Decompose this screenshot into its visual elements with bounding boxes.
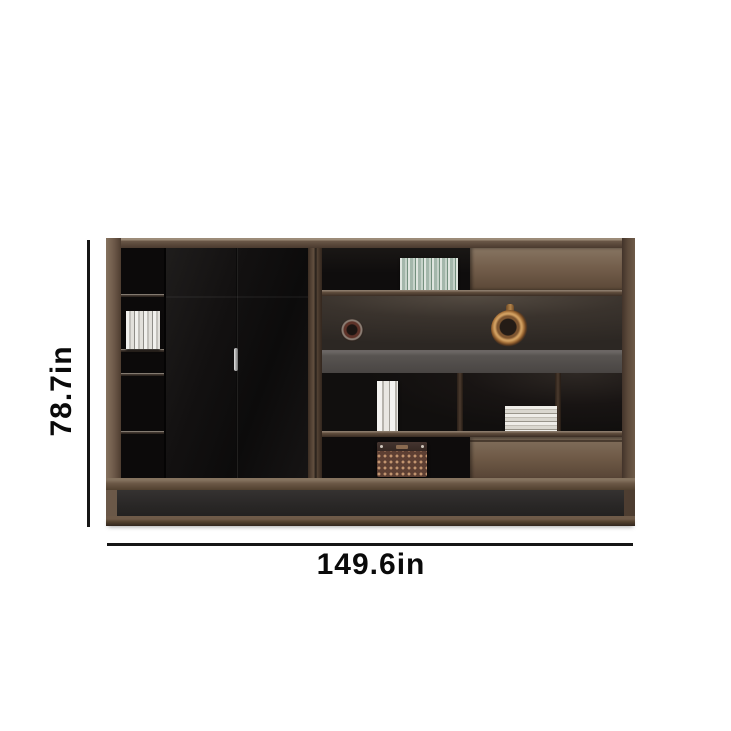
drawer-lip bbox=[470, 440, 622, 442]
section-divider bbox=[308, 248, 322, 478]
left-shelf-column bbox=[121, 248, 164, 478]
left-column-shelf bbox=[121, 431, 164, 434]
standing-books bbox=[377, 381, 398, 431]
gray-fascia-band bbox=[322, 350, 622, 373]
cabinet-top-frame bbox=[106, 238, 635, 248]
left-column-books bbox=[126, 311, 160, 349]
sliding-panel-top bbox=[470, 248, 622, 290]
right-shelving-section bbox=[322, 248, 622, 478]
basket-rivet bbox=[421, 445, 424, 448]
door-handle bbox=[234, 348, 238, 371]
vertical-divider bbox=[457, 373, 463, 431]
height-dimension-line bbox=[87, 240, 90, 527]
bottom-wood-band bbox=[106, 478, 635, 490]
left-column-shelf bbox=[121, 294, 164, 297]
bookcase-cabinet bbox=[106, 238, 635, 526]
display-row bbox=[322, 296, 622, 350]
recessed-base-panel bbox=[117, 490, 624, 516]
left-column-shelf bbox=[121, 349, 164, 352]
width-dimension-line bbox=[107, 543, 633, 546]
basket-rivet bbox=[380, 445, 383, 448]
cabinet-interior bbox=[121, 248, 622, 478]
drawer-front bbox=[470, 437, 622, 478]
door-reflection bbox=[166, 296, 308, 298]
product-dimension-image: 78.7in 149.6in bbox=[0, 0, 731, 731]
vase-ring bbox=[491, 310, 529, 348]
bottom-shelf-row bbox=[322, 437, 622, 478]
left-column-shelf bbox=[121, 373, 164, 376]
bottom-wood-strip bbox=[106, 516, 635, 526]
middle-shelf-row bbox=[322, 373, 622, 431]
top-shelf-row bbox=[322, 248, 622, 290]
book-stack bbox=[505, 406, 557, 431]
width-dimension-label: 149.6in bbox=[271, 548, 471, 582]
copper-ring-vase bbox=[491, 304, 529, 348]
small-ornament bbox=[340, 319, 364, 343]
basket-handle-plate bbox=[396, 445, 408, 449]
storage-basket bbox=[377, 442, 427, 477]
top-shelf-books bbox=[400, 258, 458, 290]
black-doors bbox=[166, 248, 308, 478]
height-dimension-label: 78.7in bbox=[45, 321, 79, 461]
cabinet-right-frame bbox=[622, 238, 635, 478]
cabinet-left-frame bbox=[106, 238, 121, 478]
